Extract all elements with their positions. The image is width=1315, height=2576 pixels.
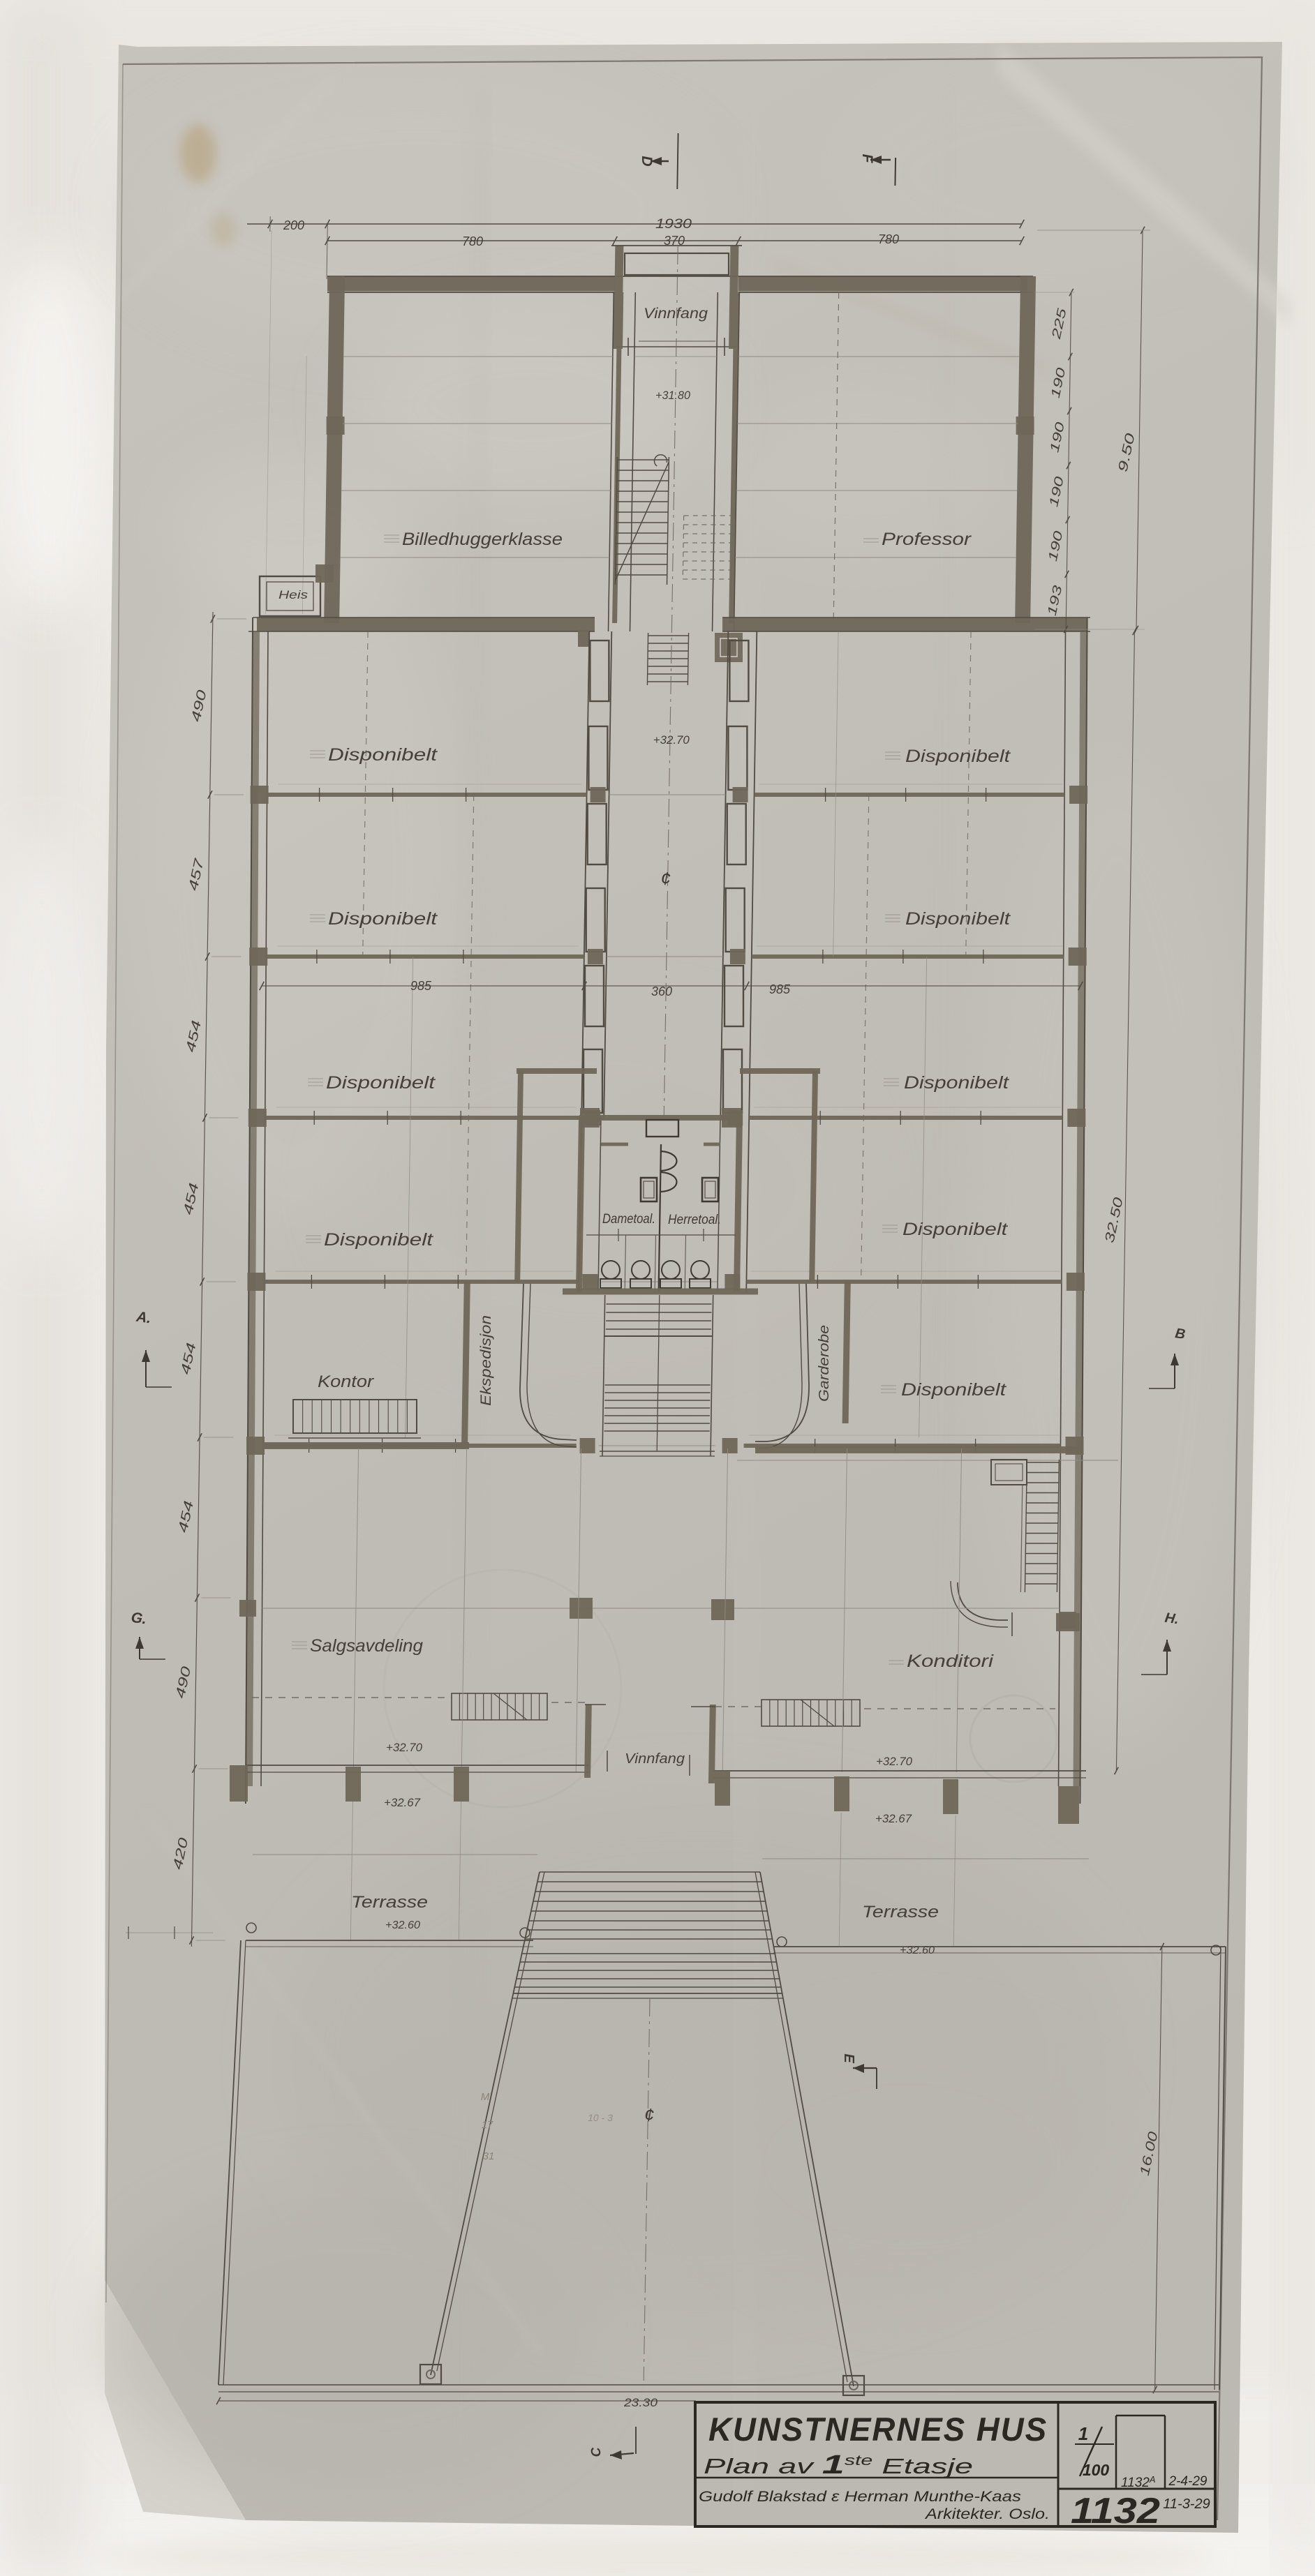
- svg-text:+32.67: +32.67: [875, 1812, 912, 1825]
- svg-text:C: C: [588, 2446, 604, 2457]
- svg-text:A.: A.: [135, 1309, 152, 1327]
- svg-text:Salgsavdeling: Salgsavdeling: [310, 1636, 423, 1656]
- svg-text:Gudolf Blakstad ε Herman Munth: Gudolf Blakstad ε Herman Munthe-Kaas: [699, 2489, 1022, 2505]
- svg-text:Kontor: Kontor: [318, 1372, 374, 1391]
- svg-text:360: 360: [651, 984, 672, 998]
- svg-text:Vinnfang: Vinnfang: [644, 306, 708, 322]
- svg-text:+32.70: +32.70: [653, 733, 690, 747]
- svg-text:G.: G.: [130, 1610, 147, 1628]
- svg-text:1930: 1930: [655, 217, 692, 232]
- svg-text:Plan av 1ste Etasje: Plan av 1ste Etasje: [704, 2450, 973, 2480]
- svg-text:Garderobe: Garderobe: [817, 1325, 832, 1402]
- svg-text:F: F: [859, 154, 875, 164]
- svg-text:780: 780: [878, 232, 899, 246]
- svg-text:200: 200: [283, 218, 304, 232]
- svg-text:Professor: Professor: [882, 530, 972, 549]
- svg-text:Dametoal.: Dametoal.: [602, 1212, 655, 1227]
- svg-text:Terrasse: Terrasse: [862, 1903, 939, 1922]
- svg-text:780: 780: [462, 234, 483, 248]
- svg-text:1132: 1132: [1071, 2491, 1160, 2531]
- svg-text:E: E: [841, 2053, 856, 2063]
- svg-text:M: M: [481, 2091, 490, 2103]
- svg-text:+32.67: +32.67: [384, 1796, 421, 1809]
- svg-text:B: B: [1174, 1326, 1186, 1342]
- svg-text:Disponibelt: Disponibelt: [901, 1380, 1006, 1400]
- svg-text:Disponibelt: Disponibelt: [326, 1073, 436, 1093]
- svg-text:+32.70: +32.70: [386, 1741, 423, 1754]
- svg-text:Arkitekter. Oslo.: Arkitekter. Oslo.: [924, 2506, 1050, 2522]
- svg-text:985: 985: [410, 979, 432, 993]
- svg-text:10 - 3: 10 - 3: [588, 2112, 613, 2123]
- svg-text:¢: ¢: [660, 868, 670, 889]
- svg-text:1: 1: [1078, 2423, 1088, 2444]
- svg-text:100: 100: [1083, 2461, 1110, 2479]
- svg-text:Disponibelt: Disponibelt: [902, 1220, 1008, 1239]
- svg-text:+32.60: +32.60: [900, 1945, 935, 1956]
- svg-text:31: 31: [483, 2150, 495, 2162]
- svg-text:Billedhuggerklasse: Billedhuggerklasse: [402, 530, 563, 549]
- svg-text:¢: ¢: [644, 2104, 654, 2125]
- svg-text:+31.80: +31.80: [655, 389, 691, 402]
- svg-text:Disponibelt: Disponibelt: [324, 1230, 433, 1250]
- svg-text:985: 985: [769, 982, 791, 996]
- svg-text:Ekspedisjon: Ekspedisjon: [478, 1315, 494, 1406]
- svg-text:H.: H.: [1164, 1610, 1180, 1628]
- svg-text:2-4-29: 2-4-29: [1168, 2474, 1208, 2489]
- svg-text:Disponibelt: Disponibelt: [905, 909, 1011, 929]
- svg-text:Vinnfang: Vinnfang: [625, 1751, 685, 1767]
- svg-text:Disponibelt: Disponibelt: [328, 745, 438, 765]
- svg-text:Terrasse: Terrasse: [351, 1893, 428, 1912]
- svg-text:17: 17: [482, 2119, 493, 2131]
- svg-text:Herretoal.: Herretoal.: [668, 1213, 721, 1227]
- svg-text:Disponibelt: Disponibelt: [328, 909, 438, 929]
- svg-text:KUNSTNERNES HUS: KUNSTNERNES HUS: [708, 2411, 1048, 2448]
- svg-text:23.30: 23.30: [623, 2396, 658, 2409]
- svg-text:Konditori: Konditori: [907, 1652, 995, 1671]
- svg-text:11-3-29: 11-3-29: [1163, 2496, 1210, 2512]
- svg-text:+32.70: +32.70: [876, 1755, 913, 1768]
- svg-text:Disponibelt: Disponibelt: [904, 1073, 1009, 1093]
- svg-text:+32.60: +32.60: [385, 1919, 420, 1931]
- svg-text:Disponibelt: Disponibelt: [905, 747, 1011, 766]
- svg-text:Heis: Heis: [278, 588, 309, 601]
